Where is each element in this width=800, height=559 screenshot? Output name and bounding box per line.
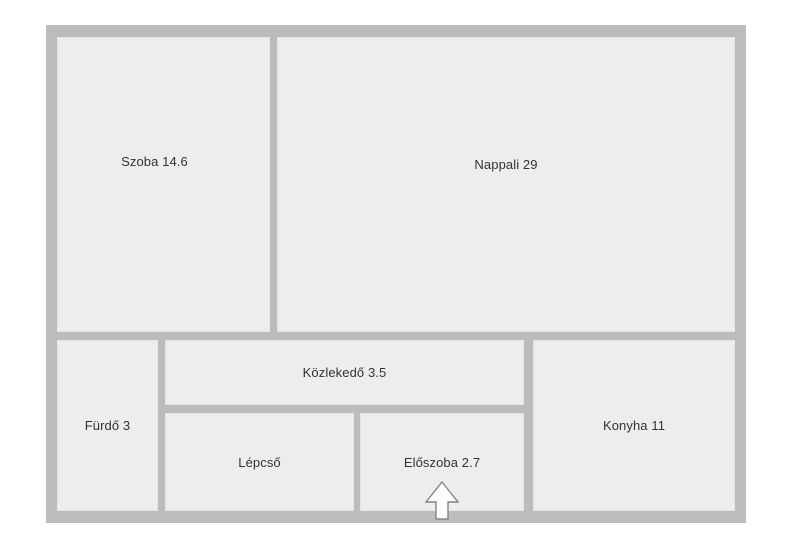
room-szoba-label: Szoba 14.6 (121, 154, 188, 169)
room-furdo: Fürdő 3 (57, 340, 158, 511)
floor-plan: Szoba 14.6 Nappali 29 Fürdő 3 Közlekedő … (46, 25, 746, 523)
room-lepcso: Lépcső (165, 413, 354, 511)
room-kozlekedo: Közlekedő 3.5 (165, 340, 524, 405)
room-szoba: Szoba 14.6 (57, 37, 270, 332)
room-furdo-label: Fürdő 3 (85, 418, 131, 433)
floor-plan-canvas: Szoba 14.6 Nappali 29 Fürdő 3 Közlekedő … (0, 0, 800, 559)
room-nappali: Nappali 29 (277, 37, 735, 332)
room-nappali-label: Nappali 29 (474, 157, 537, 172)
room-eloszoba: Előszoba 2.7 (360, 413, 524, 511)
room-lepcso-label: Lépcső (238, 455, 281, 470)
room-konyha-label: Konyha 11 (603, 418, 665, 433)
room-kozlekedo-label: Közlekedő 3.5 (303, 365, 387, 380)
room-eloszoba-label: Előszoba 2.7 (404, 455, 480, 470)
room-konyha: Konyha 11 (533, 340, 735, 511)
